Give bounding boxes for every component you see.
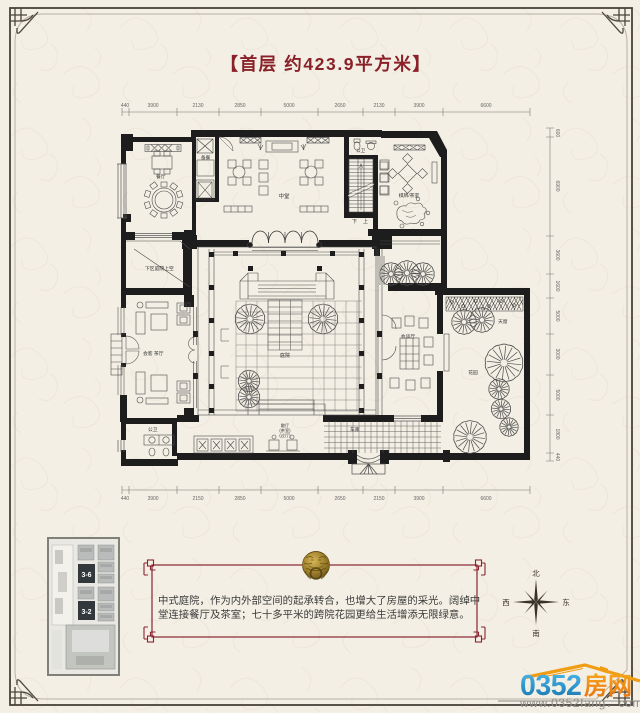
svg-text:1800: 1800	[554, 428, 560, 439]
svg-text:3-6: 3-6	[81, 572, 91, 579]
svg-text:【首层 约423.9平方米】: 【首层 约423.9平方米】	[220, 54, 431, 74]
svg-text:www.0352fang．com: www.0352fang．com	[519, 696, 640, 710]
svg-text:花园: 花园	[468, 369, 478, 376]
svg-text:5000: 5000	[283, 496, 294, 502]
svg-text:庭院: 庭院	[280, 352, 290, 359]
svg-text:下: 下	[352, 219, 357, 225]
svg-text:6600: 6600	[480, 103, 491, 109]
svg-text:公卫: 公卫	[148, 427, 158, 433]
svg-text:2150: 2150	[373, 496, 384, 502]
svg-text:440: 440	[121, 103, 130, 109]
svg-text:会谈厅: 会谈厅	[401, 333, 416, 340]
svg-text:南: 南	[532, 628, 540, 638]
svg-text:3-2: 3-2	[81, 609, 91, 616]
svg-text:5000: 5000	[554, 310, 560, 321]
svg-text:3900: 3900	[147, 496, 158, 502]
svg-text:5000: 5000	[283, 103, 294, 109]
svg-text:天窗: 天窗	[498, 318, 508, 325]
svg-text:2650: 2650	[334, 103, 345, 109]
svg-text:中式庭院，作为内外部空间的起承转合，也增大了房屋的采光。阔绰: 中式庭院，作为内外部空间的起承转合，也增大了房屋的采光。阔绰中	[158, 594, 480, 607]
svg-text:1600: 1600	[554, 280, 560, 291]
svg-text:3900: 3900	[413, 103, 424, 109]
svg-text:2850: 2850	[234, 496, 245, 502]
svg-text:备餐: 备餐	[201, 154, 211, 161]
svg-text:会客 茶厅: 会客 茶厅	[143, 350, 164, 357]
svg-text:堂连接餐厅及茶室；七十多平米的跨院花园更给生活增添无限绿意。: 堂连接餐厅及茶室；七十多平米的跨院花园更给生活增添无限绿意。	[158, 608, 470, 621]
svg-text:车库: 车库	[350, 426, 360, 433]
svg-text:东: 东	[562, 597, 570, 607]
svg-text:3900: 3900	[147, 103, 158, 109]
svg-text:440: 440	[121, 496, 130, 502]
svg-text:(过厅): (过厅)	[279, 432, 291, 439]
svg-text:3000: 3000	[554, 348, 560, 359]
svg-text:上: 上	[363, 218, 368, 225]
svg-text:餐厅: 餐厅	[156, 173, 166, 180]
svg-text:2650: 2650	[334, 496, 345, 502]
svg-text:北: 北	[532, 569, 540, 578]
svg-text:600: 600	[554, 129, 560, 138]
svg-text:3900: 3900	[413, 496, 424, 502]
svg-text:西: 西	[502, 598, 510, 607]
svg-text:2130: 2130	[373, 103, 384, 109]
svg-text:公卫: 公卫	[356, 148, 366, 153]
svg-text:2130: 2130	[192, 103, 203, 109]
svg-text:6900: 6900	[554, 180, 560, 191]
svg-text:440: 440	[554, 453, 560, 462]
svg-text:5000: 5000	[554, 389, 560, 400]
svg-text:2150: 2150	[192, 496, 203, 502]
svg-text:6600: 6600	[480, 496, 491, 502]
svg-text:中堂: 中堂	[279, 192, 290, 200]
svg-text:2850: 2850	[234, 103, 245, 109]
svg-text:3600: 3600	[554, 249, 560, 260]
svg-text:下区庭院上空: 下区庭院上空	[145, 265, 174, 272]
